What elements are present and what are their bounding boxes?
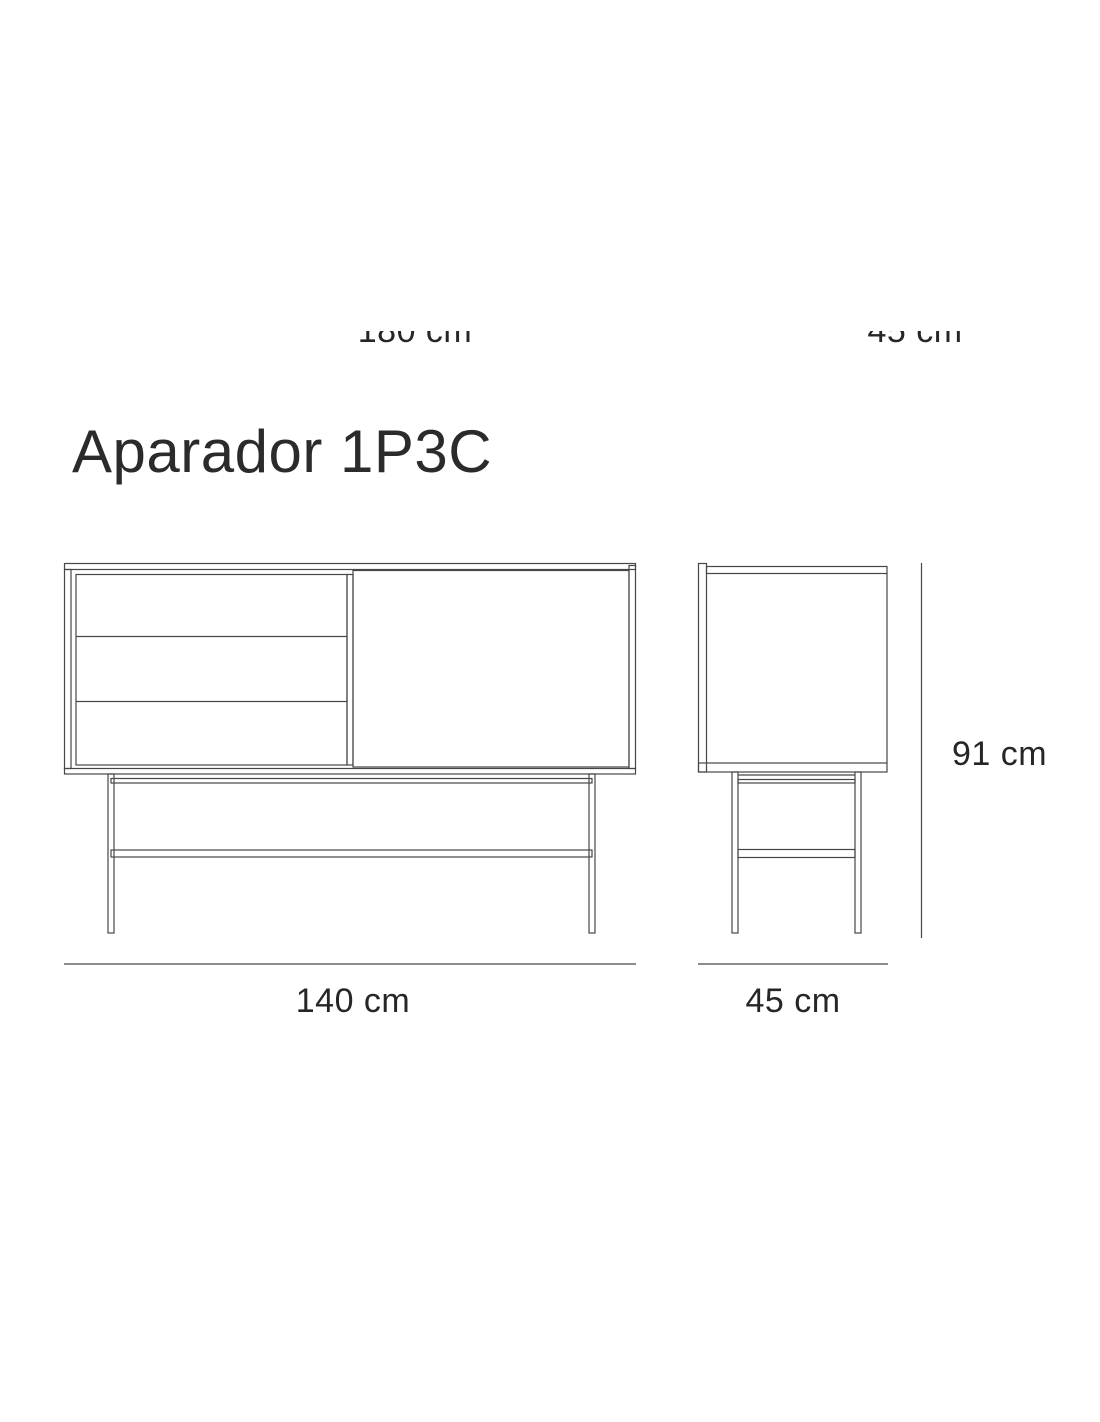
front-center-divider	[347, 575, 353, 766]
side-height-label: 91 cm	[952, 737, 1047, 771]
side-upper-rail	[738, 780, 855, 784]
side-depth-label: 45 cm	[693, 984, 893, 1018]
side-lower-rail	[738, 850, 855, 858]
diagram-page: 180 cm 45 cm Aparador 1P3C	[0, 0, 1100, 1422]
side-left-panel	[699, 564, 707, 773]
side-bottom-slab	[699, 763, 888, 772]
front-bottom-slab	[65, 769, 636, 775]
side-top-lid	[707, 567, 888, 574]
front-sliding-door	[353, 571, 629, 768]
front-right-panel	[629, 566, 636, 769]
side-back-leg	[855, 772, 861, 933]
front-left-panel	[65, 570, 72, 769]
front-view-drawing	[65, 564, 636, 934]
front-top-lid	[65, 564, 636, 570]
front-upper-rail	[111, 779, 592, 784]
front-width-label: 140 cm	[253, 984, 453, 1018]
front-drawer-unit	[76, 575, 347, 766]
side-front-leg	[732, 772, 738, 933]
front-lower-rail	[111, 850, 592, 857]
dimension-drawing	[0, 0, 1100, 1422]
side-view-drawing	[699, 564, 888, 934]
